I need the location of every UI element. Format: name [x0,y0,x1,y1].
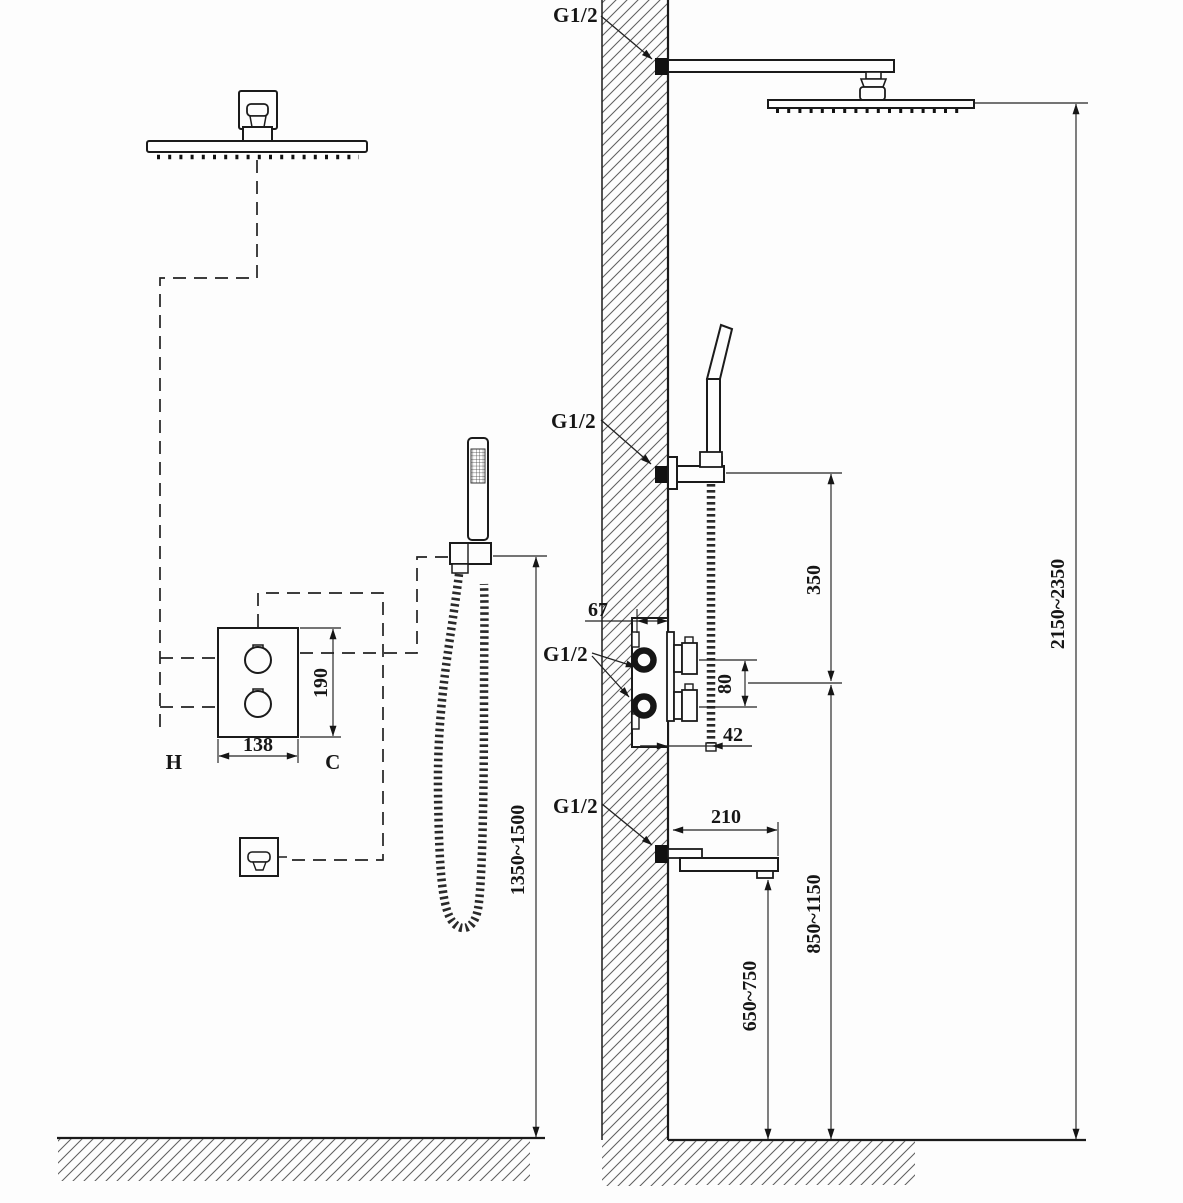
valve-trim-plate [667,632,674,721]
dim-embed-depth-label: 67 [588,599,608,621]
arm-coupler [866,72,881,79]
dim-valve-height-label: 190 [310,668,332,698]
wand-holder-front [450,543,491,564]
valve-side [632,618,697,747]
hand-shower-front [438,438,491,928]
mount-neck [250,116,266,127]
head-wall-connection [655,58,668,75]
head-plate-side [768,100,974,108]
head-plate-front [147,141,367,152]
knob-stem-top [674,645,682,672]
temperature-knob [245,647,271,673]
dim-spout-height-label: 650~750 [739,961,761,1031]
front-view-pipe-routing [160,160,449,860]
holder-wall-connection [655,466,668,483]
head-arm-front [243,127,272,141]
wand-body-side [707,379,720,457]
diagram-canvas: G1/2 G1/2 G1/2 G1/2 138 190 H C 1350~150… [0,0,1183,1203]
spout-base [668,849,702,858]
g12-label-top: G1/2 [553,3,598,27]
g12-label-holder: G1/2 [551,409,596,433]
swivel-joint [860,87,885,100]
floor-right-hatch [668,1141,915,1185]
g12-label-valve: G1/2 [543,642,588,666]
spout-outlet-nub [757,871,773,878]
spout-lip [253,862,266,870]
wand-handle-side [707,325,732,383]
wand-spray-face [471,449,485,483]
holder-clamp-side [700,452,722,467]
valve-front [218,628,298,737]
dim-valve-height-range-label: 850~1150 [803,874,825,953]
floor-left [57,1138,545,1181]
rain-head-front [147,91,367,157]
spout-face [248,852,270,862]
floor-right [668,1140,1086,1185]
dim-holder-offset-label: 350 [803,565,825,595]
knob-head-top [682,643,697,674]
g12-label-spout: G1/2 [553,794,598,818]
head-arm-side [668,60,894,72]
hose-connector-front [452,564,468,573]
floor-left-hatch [58,1139,530,1181]
shower-installation-diagram: G1/2 G1/2 G1/2 G1/2 138 190 H C 1350~150… [0,0,1183,1203]
knob-stem-bottom [674,692,682,719]
cold-label: C [325,750,341,774]
dim-handheld-height-label: 1350~1500 [507,805,529,895]
holder-arm-side [677,466,724,482]
hose-end-fitting [706,743,716,751]
spout-body-side [680,858,778,871]
spout-front [240,838,287,876]
hot-label: H [166,750,183,774]
knob-head-bottom [682,690,697,721]
wall-hatch [602,0,668,1186]
dim-valve-width-label: 138 [243,734,273,756]
dim-face-offset-label: 42 [723,724,743,746]
handshower-route [300,557,449,653]
holder-flange-side [668,457,677,489]
spout-side [655,845,778,878]
dim-overall-height-label: 2150~2350 [1047,559,1069,649]
rain-head-side [655,58,974,111]
arm-nut [861,79,886,87]
dim-port-spacing-label: 80 [714,674,736,694]
mount-inner [247,104,268,116]
mount-tab-top [632,632,639,647]
shower-hose-front [438,574,484,928]
diverter-knob [245,691,271,717]
wall-section [602,0,668,1186]
dim-spout-reach-label: 210 [711,806,741,828]
spout-wall-connection [655,845,668,863]
